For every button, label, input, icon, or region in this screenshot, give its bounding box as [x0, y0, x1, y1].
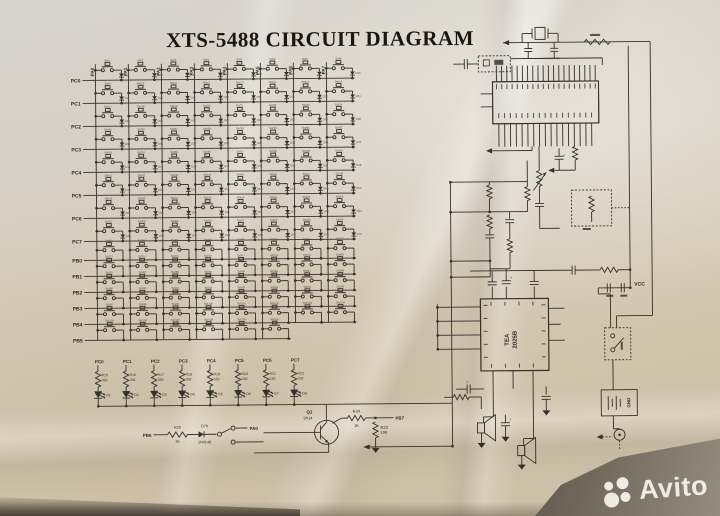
- svg-text:PB5: PB5: [73, 338, 83, 344]
- svg-text:SW54: SW54: [270, 195, 278, 199]
- svg-text:+: +: [509, 418, 511, 422]
- svg-text:SW103: SW103: [303, 301, 313, 305]
- led-column: PC4R19330D5: [206, 358, 223, 406]
- svg-text:330: 330: [270, 377, 276, 381]
- svg-text:D5: D5: [218, 392, 223, 396]
- svg-text:SW46: SW46: [269, 172, 277, 176]
- svg-text:D57: D57: [126, 211, 132, 215]
- svg-text:D42: D42: [158, 165, 164, 169]
- matrix-cell: SW21D29: [226, 103, 262, 126]
- matrix-cell: SW28D36: [194, 127, 230, 150]
- svg-text:SW101: SW101: [237, 301, 247, 305]
- svg-text:SW91: SW91: [171, 286, 179, 290]
- svg-text:PC7: PC7: [291, 358, 300, 363]
- matrix-cell: SW34D42: [128, 150, 164, 173]
- svg-text:330: 330: [158, 378, 164, 382]
- svg-text:SW63: SW63: [303, 218, 311, 222]
- svg-text:D72: D72: [357, 232, 363, 236]
- matrix-cell: SW51D59: [161, 196, 197, 219]
- svg-text:330: 330: [130, 378, 136, 382]
- matrix-cell: SW31D39: [293, 126, 329, 149]
- svg-text:SW102: SW102: [270, 301, 280, 305]
- svg-text:SW44: SW44: [203, 173, 211, 177]
- matrix-cell: SW59D67: [161, 219, 197, 242]
- matrix-cell: SW106: [129, 318, 158, 341]
- svg-text:SW52: SW52: [204, 196, 212, 200]
- svg-text:SW3: SW3: [170, 58, 177, 62]
- svg-text:D24: D24: [356, 94, 362, 98]
- matrix-cell: SW54D62: [260, 195, 296, 218]
- svg-text:2025B: 2025B: [513, 330, 519, 348]
- svg-text:SW4: SW4: [203, 58, 210, 62]
- svg-text:D13: D13: [256, 72, 262, 76]
- svg-text:D16: D16: [355, 71, 361, 75]
- svg-text:SW5: SW5: [236, 57, 243, 61]
- svg-text:SW1: SW1: [104, 59, 111, 63]
- svg-text:D4: D4: [190, 392, 195, 396]
- battery-gnd-box: GND: [601, 390, 637, 416]
- svg-text:R16: R16: [129, 373, 136, 377]
- svg-text:D14: D14: [289, 72, 295, 76]
- svg-text:D34: D34: [158, 142, 164, 146]
- svg-text:SW19: SW19: [170, 104, 178, 108]
- svg-text:PC5: PC5: [235, 358, 244, 363]
- matrix-cell: SW57D65: [95, 219, 131, 242]
- svg-text:D41: D41: [125, 165, 131, 169]
- led-column: PC3R18330D4: [178, 358, 195, 406]
- avito-logo-icon: [599, 473, 635, 509]
- svg-text:R20: R20: [241, 372, 248, 376]
- matrix-cell: SW36D44: [194, 150, 230, 173]
- svg-text:R15: R15: [101, 373, 108, 377]
- svg-text:SW76: SW76: [204, 254, 212, 258]
- matrix-cell: SW42D50: [128, 173, 164, 196]
- svg-text:D39: D39: [323, 140, 329, 144]
- svg-text:SW89: SW89: [105, 287, 113, 291]
- power-switch: [605, 328, 631, 360]
- svg-text:D56: D56: [356, 186, 362, 190]
- transistor-q1: Q19014: [253, 404, 338, 453]
- svg-text:D27: D27: [191, 118, 197, 122]
- svg-text:D44: D44: [224, 164, 230, 168]
- matrix-cell: SW64D72: [326, 217, 362, 240]
- matrix-cell: SW103: [294, 301, 323, 324]
- matrix-cell: SW20D28: [193, 104, 229, 127]
- svg-text:330: 330: [214, 377, 220, 381]
- svg-text:SW17: SW17: [104, 105, 112, 109]
- svg-text:PB1: PB1: [72, 274, 82, 280]
- svg-text:D62: D62: [291, 210, 297, 214]
- svg-text:SW14: SW14: [269, 80, 277, 84]
- svg-text:SW51: SW51: [171, 196, 179, 200]
- matrix-cell: SW52D60: [194, 196, 230, 219]
- matrix-cell: SW18D26: [127, 104, 163, 127]
- svg-text:PC6: PC6: [72, 216, 82, 222]
- svg-text:SW96: SW96: [336, 285, 344, 289]
- svg-text:SW9: SW9: [104, 82, 111, 86]
- svg-text:SW49: SW49: [105, 197, 113, 201]
- svg-text:D11: D11: [190, 72, 195, 76]
- svg-text:SW35: SW35: [170, 150, 178, 154]
- svg-text:D61: D61: [258, 210, 264, 214]
- svg-text:D65: D65: [126, 234, 132, 238]
- svg-text:SW85: SW85: [237, 269, 245, 273]
- svg-text:PB7: PB7: [395, 416, 404, 421]
- dc-jack: [597, 429, 626, 450]
- svg-text:SW47: SW47: [302, 172, 310, 176]
- svg-text:D18: D18: [158, 96, 164, 100]
- svg-text:SW28: SW28: [203, 127, 211, 131]
- svg-text:D37: D37: [257, 141, 263, 145]
- svg-text:D70: D70: [291, 233, 297, 237]
- svg-text:D52: D52: [224, 187, 230, 191]
- matrix-cell: SW61D69: [227, 218, 263, 241]
- svg-text:D2: D2: [134, 393, 139, 397]
- svg-text:SW79: SW79: [303, 253, 311, 257]
- svg-text:SW82: SW82: [138, 270, 146, 274]
- matrix-cell: SW53D61: [227, 195, 263, 218]
- svg-text:SW2: SW2: [137, 58, 144, 62]
- svg-text:SW93: SW93: [237, 285, 245, 289]
- svg-text:PB4: PB4: [73, 322, 83, 328]
- matrix-cell: SW22D30: [259, 103, 295, 126]
- matrix-cell: SW27D35: [161, 127, 197, 150]
- svg-text:SW84: SW84: [204, 270, 212, 274]
- svg-text:10K: 10K: [381, 430, 388, 435]
- svg-text:D28: D28: [224, 118, 230, 122]
- svg-text:PC2: PC2: [151, 359, 160, 364]
- svg-text:Q1: Q1: [306, 409, 313, 414]
- svg-text:SW94: SW94: [270, 285, 278, 289]
- svg-text:SW34: SW34: [137, 150, 145, 154]
- svg-text:SW66: SW66: [138, 238, 146, 242]
- svg-text:R24: R24: [353, 408, 361, 413]
- svg-text:D66: D66: [159, 234, 165, 238]
- svg-text:+: +: [563, 153, 565, 157]
- svg-text:SW100: SW100: [204, 302, 214, 306]
- svg-text:D6: D6: [246, 392, 251, 396]
- svg-text:SW62: SW62: [270, 218, 278, 222]
- svg-text:SW36: SW36: [203, 150, 211, 154]
- svg-text:SW43: SW43: [170, 173, 178, 177]
- matrix-cell: SW58D66: [128, 219, 164, 242]
- svg-text:D43: D43: [191, 164, 197, 168]
- watermark-text: Avito: [638, 470, 709, 506]
- matrix-cell: SW29D37: [227, 126, 263, 149]
- svg-text:SW86: SW86: [270, 269, 278, 273]
- matrix-cell: SW104: [327, 300, 356, 323]
- matrix-cell: SW11D19: [160, 81, 196, 104]
- svg-text:+: +: [510, 276, 512, 280]
- svg-text:SW78: SW78: [270, 253, 278, 257]
- matrix-cell: SW45D53: [227, 172, 263, 195]
- matrix-cell: SW15D23: [292, 80, 328, 103]
- led-column: PC7R22330D8: [290, 357, 307, 405]
- svg-text:PC5: PC5: [72, 193, 82, 199]
- svg-text:SW67: SW67: [171, 238, 179, 242]
- svg-text:PC6: PC6: [263, 358, 272, 363]
- led-column: PC0R15330D1: [94, 359, 111, 407]
- svg-text:SW110: SW110: [270, 317, 279, 321]
- svg-text:SW98: SW98: [139, 302, 147, 306]
- svg-text:PB2: PB2: [73, 290, 83, 296]
- svg-text:PA0: PA0: [90, 67, 95, 76]
- svg-text:PC3: PC3: [179, 359, 188, 364]
- svg-text:D17: D17: [125, 96, 131, 100]
- svg-text:D3: D3: [162, 393, 167, 397]
- svg-text:330: 330: [186, 377, 192, 381]
- svg-text:SW18: SW18: [137, 104, 145, 108]
- matrix-cell: SW41D49: [95, 173, 131, 196]
- matrix-cell: SW39D47: [293, 149, 329, 172]
- svg-text:SW10: SW10: [137, 81, 145, 85]
- matrix-cell: SW46D54: [260, 172, 296, 195]
- matrix-cell: SW50D58: [128, 196, 164, 219]
- matrix-cell: SW24D32: [325, 102, 361, 125]
- svg-text:D38: D38: [290, 141, 296, 145]
- matrix-cell: SW105: [96, 318, 125, 341]
- svg-text:PA0: PA0: [249, 426, 258, 431]
- svg-text:PC1: PC1: [71, 101, 81, 107]
- svg-text:D8: D8: [302, 391, 307, 395]
- svg-text:SW108: SW108: [204, 318, 214, 322]
- svg-text:SW16: SW16: [335, 80, 343, 84]
- svg-text:D25: D25: [125, 119, 131, 123]
- svg-text:PB6: PB6: [143, 433, 152, 438]
- svg-text:D50: D50: [158, 188, 164, 192]
- matrix-cell: SW43D51: [161, 173, 197, 196]
- svg-text:SW75: SW75: [171, 254, 179, 258]
- svg-text:330: 330: [102, 378, 108, 382]
- svg-text:SW97: SW97: [106, 303, 114, 307]
- svg-text:SW53: SW53: [237, 195, 245, 199]
- svg-text:SW31: SW31: [302, 126, 310, 130]
- svg-text:PC1: PC1: [123, 359, 132, 364]
- svg-text:D54: D54: [290, 187, 296, 191]
- svg-text:D70: D70: [201, 424, 208, 428]
- svg-text:SW69: SW69: [237, 237, 245, 241]
- svg-text:PC4: PC4: [71, 170, 81, 176]
- svg-text:SW25: SW25: [104, 128, 112, 132]
- speaker-1: [477, 415, 495, 448]
- svg-text:SW56: SW56: [336, 195, 344, 199]
- svg-text:D29: D29: [257, 118, 263, 122]
- matrix-cell: SW13D21: [226, 80, 262, 103]
- matrix-cell: SW26D34: [128, 127, 164, 150]
- svg-text:SW105: SW105: [105, 319, 115, 323]
- svg-text:VCC: VCC: [634, 282, 645, 288]
- svg-text:D35: D35: [191, 141, 197, 145]
- matrix-cell: SW19D27: [160, 104, 196, 127]
- svg-text:SW24: SW24: [335, 103, 343, 107]
- svg-text:GND: GND: [626, 397, 631, 408]
- svg-text:SW74: SW74: [138, 254, 146, 258]
- svg-text:PC0: PC0: [95, 359, 104, 364]
- svg-text:D32: D32: [356, 117, 362, 121]
- svg-text:SW57: SW57: [105, 220, 113, 224]
- matrix-cell: SW14D22: [259, 80, 295, 103]
- svg-text:R18: R18: [185, 372, 192, 376]
- svg-text:SW29: SW29: [236, 126, 244, 130]
- svg-text:SW15: SW15: [302, 80, 310, 84]
- svg-text:D26: D26: [158, 119, 164, 123]
- svg-text:PC7: PC7: [72, 239, 82, 245]
- svg-text:D33: D33: [125, 142, 131, 146]
- svg-text:SW59: SW59: [171, 219, 179, 223]
- svg-text:D59: D59: [192, 210, 198, 214]
- svg-text:SW95: SW95: [303, 285, 311, 289]
- matrix-cell: SW23D31: [292, 103, 328, 126]
- svg-text:D10: D10: [157, 73, 163, 77]
- svg-text:SW37: SW37: [236, 149, 244, 153]
- led-array: PC0R15330D1PC1R16330D2PC2R17330D3PC3R183…: [94, 356, 452, 407]
- svg-text:SW64: SW64: [336, 218, 344, 222]
- key-matrix: PA0PA1PA2PA3PA4PA5PA6PA7PC0PC1PC2PC3PC4P…: [71, 56, 364, 344]
- svg-text:+: +: [466, 380, 468, 384]
- svg-text:SW88: SW88: [336, 269, 344, 273]
- svg-text:R22: R22: [297, 371, 304, 375]
- svg-text:R19: R19: [213, 372, 220, 376]
- svg-text:D69: D69: [258, 233, 264, 237]
- svg-text:D7: D7: [274, 392, 279, 396]
- matrix-cell: SW32D40: [326, 125, 362, 148]
- svg-text:SW7: SW7: [302, 57, 309, 61]
- svg-text:D22: D22: [290, 95, 296, 99]
- matrix-cell: SW110: [261, 317, 290, 340]
- svg-text:SW80: SW80: [336, 253, 344, 257]
- svg-text:SW106: SW106: [138, 318, 148, 322]
- svg-text:SW39: SW39: [302, 149, 310, 153]
- svg-text:D51: D51: [191, 187, 197, 191]
- svg-text:SW8: SW8: [335, 57, 342, 61]
- matrix-cell: SW63D71: [293, 218, 329, 241]
- svg-text:D71: D71: [324, 232, 330, 236]
- svg-text:SW6: SW6: [269, 57, 276, 61]
- svg-text:SW20: SW20: [203, 104, 211, 108]
- svg-text:SW87: SW87: [303, 269, 311, 273]
- matrix-cell: SW8D16: [325, 56, 361, 79]
- matrix-cell: SW12D20: [193, 81, 229, 104]
- matrix-cell: SW35D43: [161, 150, 197, 173]
- svg-text:SW11: SW11: [170, 81, 178, 85]
- matrix-cell: SW40D48: [326, 148, 362, 171]
- svg-text:D23: D23: [323, 94, 329, 98]
- svg-text:SW81: SW81: [105, 271, 113, 275]
- svg-text:SW99: SW99: [172, 302, 180, 306]
- svg-text:SW50: SW50: [138, 196, 146, 200]
- photo-of-schematic: XTS-5488 CIRCUIT DIAGRAM PA0PA1PA2PA3PA4…: [0, 0, 720, 516]
- svg-text:SW71: SW71: [303, 237, 311, 241]
- svg-text:D58: D58: [159, 211, 165, 215]
- svg-text:D9: D9: [124, 73, 128, 77]
- svg-text:D15: D15: [322, 71, 328, 75]
- matrix-cell: SW60D68: [194, 219, 230, 242]
- matrix-cell: SW17D25: [94, 104, 130, 127]
- svg-text:SW77: SW77: [237, 253, 245, 257]
- svg-text:D53: D53: [257, 187, 263, 191]
- led-column: PC2R17330D3: [150, 359, 167, 407]
- svg-text:SW68: SW68: [204, 238, 212, 242]
- svg-text:SW42: SW42: [137, 173, 145, 177]
- svg-text:SW45: SW45: [236, 172, 244, 176]
- svg-text:SW13: SW13: [236, 80, 244, 84]
- matrix-cell: SW48D56: [326, 171, 362, 194]
- svg-text:R25: R25: [174, 426, 181, 430]
- svg-text:1N4148: 1N4148: [198, 440, 211, 444]
- svg-text:D30: D30: [290, 118, 296, 122]
- svg-text:D49: D49: [125, 188, 131, 192]
- svg-text:D19: D19: [191, 95, 197, 99]
- svg-text:D31: D31: [323, 117, 329, 121]
- svg-text:SW23: SW23: [302, 103, 310, 107]
- matrix-cell: SW33D41: [95, 150, 131, 173]
- svg-text:D64: D64: [357, 209, 363, 213]
- matrix-cell: SW49D57: [95, 196, 131, 219]
- svg-text:D68: D68: [225, 233, 231, 237]
- led-column: PC6R21330D7: [262, 358, 279, 406]
- svg-text:SW22: SW22: [269, 103, 277, 107]
- matrix-cell: SW25D33: [95, 127, 131, 150]
- svg-text:D45: D45: [257, 164, 263, 168]
- svg-text:SW104: SW104: [336, 301, 346, 305]
- svg-text:PB3: PB3: [73, 306, 83, 312]
- svg-text:PC3: PC3: [71, 147, 81, 153]
- svg-text:SW58: SW58: [138, 219, 146, 223]
- svg-text:D12: D12: [223, 72, 229, 76]
- matrix-cell: SW10D18: [127, 81, 163, 104]
- matrix-cell: SW56D64: [326, 194, 362, 217]
- svg-text:D40: D40: [356, 140, 362, 144]
- led-column: PC5R20330D6: [234, 358, 251, 406]
- svg-text:SW90: SW90: [138, 286, 146, 290]
- svg-text:SW92: SW92: [204, 286, 212, 290]
- svg-text:SW72: SW72: [336, 237, 344, 241]
- svg-text:D47: D47: [323, 163, 329, 167]
- svg-text:SW73: SW73: [105, 255, 113, 259]
- matrix-cell: SW62D70: [260, 218, 296, 241]
- svg-text:PC0: PC0: [71, 78, 81, 84]
- svg-text:1K: 1K: [354, 423, 359, 428]
- svg-text:SW61: SW61: [237, 218, 245, 222]
- svg-text:SW21: SW21: [236, 103, 244, 107]
- svg-text:SW41: SW41: [104, 174, 112, 178]
- svg-text:9014: 9014: [303, 415, 313, 420]
- matrix-cell: SW109: [228, 317, 257, 340]
- svg-text:PC2: PC2: [71, 124, 81, 130]
- svg-text:D1: D1: [106, 393, 111, 397]
- svg-text:SW109: SW109: [237, 317, 247, 321]
- led-column: PC1R16330D2: [122, 359, 139, 407]
- svg-text:PC4: PC4: [207, 358, 216, 363]
- svg-text:D55: D55: [323, 186, 329, 190]
- svg-text:SW55: SW55: [303, 195, 311, 199]
- svg-text:D46: D46: [290, 164, 296, 168]
- svg-text:D60: D60: [225, 210, 231, 214]
- matrix-cell: SW30D38: [260, 126, 296, 149]
- speaker-2: [518, 437, 536, 469]
- svg-text:SW60: SW60: [204, 219, 212, 223]
- svg-text:330: 330: [242, 377, 248, 381]
- svg-text:SW33: SW33: [104, 151, 112, 155]
- svg-text:R17: R17: [157, 373, 164, 377]
- svg-text:SW107: SW107: [171, 318, 181, 322]
- svg-text:PB0: PB0: [72, 258, 82, 264]
- svg-text:1K: 1K: [175, 440, 180, 444]
- amplifier-section: TEA2025B+++: [362, 265, 633, 471]
- matrix-cell: SW9D17: [94, 81, 130, 104]
- svg-text:SW27: SW27: [170, 127, 178, 131]
- svg-text:D20: D20: [224, 95, 230, 99]
